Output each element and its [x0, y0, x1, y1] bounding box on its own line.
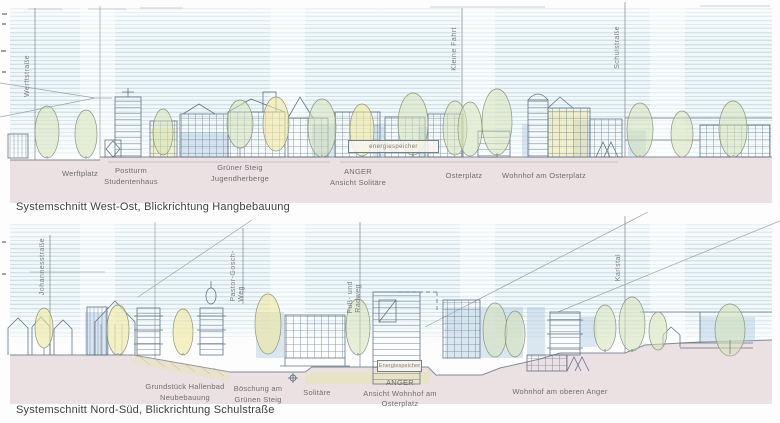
street-label-fuss-und-radweg: Fuß- und Radweg [347, 245, 362, 313]
label-line: Grüner Steig [211, 162, 269, 173]
label-line: Radweg [355, 284, 362, 313]
label-line: Osterplatz [446, 170, 483, 181]
area-label-anger-west-ost: ANGER Ansicht Solitäre [330, 166, 386, 188]
street-label-pastor-gosch-weg: Pastor-Gosch- Weg [230, 232, 245, 302]
label-line: Werftplatz [62, 168, 98, 179]
street-label-werftstrasse: Werftstraße [24, 55, 31, 97]
label-line: Neubebauung [145, 392, 224, 403]
label-line: Weg [238, 286, 245, 302]
scan-artifacts [2, 242, 6, 274]
perspective-sightlines [0, 83, 112, 117]
label-line: Osterplatz [363, 399, 437, 410]
label-line: Pastor-Gosch- [230, 250, 237, 302]
area-label-gruener-steig: Grüner Steig Jugendherberge [211, 162, 269, 184]
label-line: Studentenhaus [104, 176, 158, 187]
label-line: Solitäre [303, 387, 330, 398]
label-line: Wohnhof am Osterplatz [502, 170, 586, 181]
label-line: Ansicht Wohnhof am [363, 389, 437, 400]
top-guide-ticks [28, 6, 770, 9]
street-label-schulstrasse: Schulstraße [614, 26, 621, 69]
annotation-energiespeicher-west-ost: energiespeicher [348, 140, 439, 153]
street-label-karlstal: Karlstal [615, 254, 622, 281]
label-line: Wohnhof am oberen Anger [512, 386, 607, 397]
caption-nord-sued: Systemschnitt Nord-Süd, Blickrichtung Sc… [16, 404, 275, 416]
area-label-anger-nord-sued: ANGER Ansicht Wohnhof am Osterplatz [363, 378, 437, 410]
annotation-energiespeicher-nord-sued: Energiespeicher [377, 360, 422, 372]
label-line: Ansicht Solitäre [330, 177, 386, 188]
street-label-kleine-fahrt: Kleine Fahrt [451, 27, 458, 71]
street-label-johannesstrasse: Johannesstraße [39, 238, 46, 295]
scan-artifacts [1, 14, 7, 72]
label-line: Jugendherberge [211, 173, 269, 184]
label-line: ANGER [330, 166, 386, 177]
label-line: Grundstück Hallenbad [145, 381, 224, 392]
area-label-wohnhof-am-osterplatz: Wohnhof am Osterplatz [502, 170, 586, 181]
scanned-section-sheet: Werftstraße Kleine Fahrt Schulstraße ene… [0, 0, 780, 423]
area-label-boeschung: Böschung am Grünen Steig [234, 383, 283, 405]
area-label-solitaere: Solitäre [303, 387, 330, 398]
label-line: Böschung am [234, 383, 283, 394]
area-label-osterplatz: Osterplatz [446, 170, 483, 181]
caption-west-ost: Systemschnitt West-Ost, Blickrichtung Ha… [16, 201, 290, 213]
label-line: Fuß- und [347, 281, 354, 313]
area-label-postturm: Postturm Studentenhaus [104, 165, 158, 187]
label-line: ANGER [363, 378, 437, 389]
area-label-werftplatz: Werftplatz [62, 168, 98, 179]
label-line: Postturm [104, 165, 158, 176]
area-label-hallenbad: Grundstück Hallenbad Neubebauung [145, 381, 224, 403]
area-label-wohnhof-oberer-anger: Wohnhof am oberen Anger [512, 386, 607, 397]
